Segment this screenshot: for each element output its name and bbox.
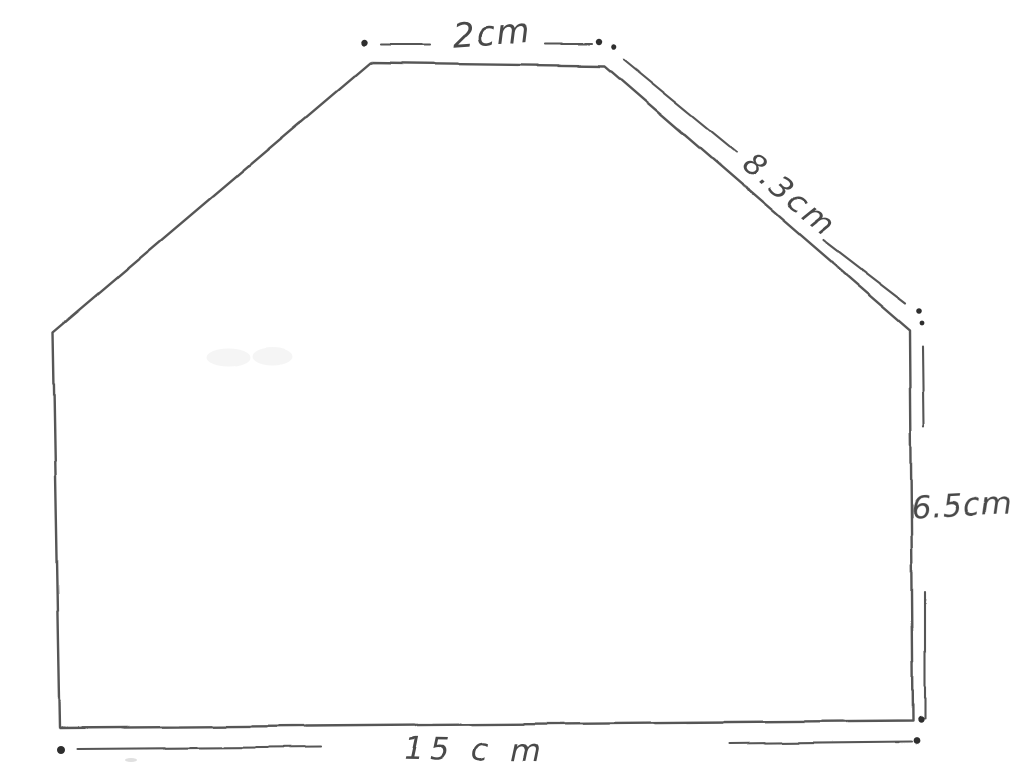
measurement-dot: [918, 717, 924, 723]
dimension-line: [78, 747, 321, 749]
sketch-page: 2cm 8.3cm 6.5cm 15 c m: [0, 0, 1024, 768]
dimension-line: [729, 742, 911, 744]
polygon-measurement-sketch: 2cm 8.3cm 6.5cm 15 c m: [0, 0, 1024, 768]
measurement-dot: [920, 321, 925, 326]
line-art-layer: 2cm 8.3cm 6.5cm 15 c m: [53, 11, 1013, 768]
dimension-line: [923, 346, 924, 427]
measurement-dot: [596, 39, 602, 45]
label-upper-right-edge-measurement: 8.3cm: [735, 146, 844, 245]
measurement-dot: [611, 44, 617, 50]
measurement-dot: [57, 746, 65, 754]
dimension-line: [624, 60, 736, 152]
pencil-smudge: [252, 348, 292, 366]
dimension-line: [823, 240, 905, 303]
label-right-edge-measurement: 6.5cm: [910, 485, 1013, 526]
label-bottom-edge-measurement: 15 c m: [404, 731, 547, 768]
pencil-smudge: [125, 758, 137, 762]
polygon-outline: [53, 63, 913, 728]
label-top-edge-measurement: 2cm: [451, 11, 533, 56]
pencil-smudge: [206, 349, 250, 367]
measurement-dot: [361, 40, 367, 46]
measurement-dot: [916, 308, 922, 314]
measurement-dot: [913, 738, 920, 745]
